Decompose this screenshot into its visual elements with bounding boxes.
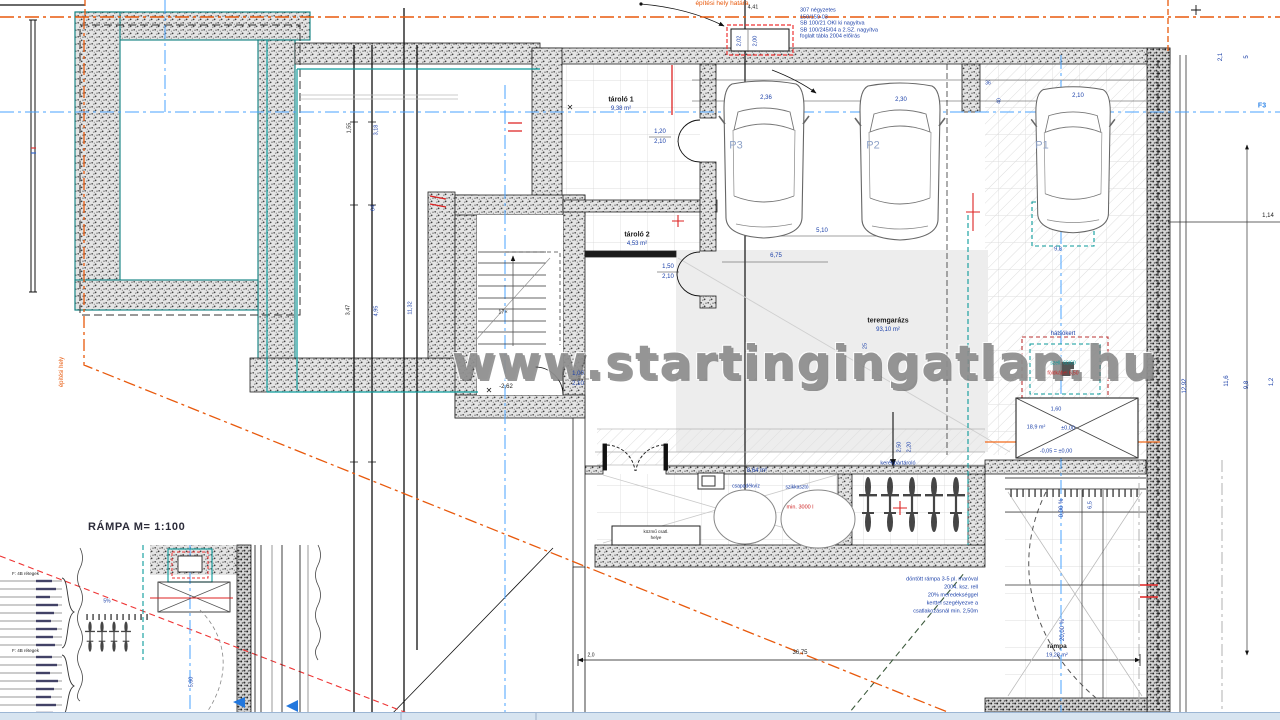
annotation-label: 6,75 bbox=[770, 253, 782, 259]
ramp-grating bbox=[1008, 489, 1140, 497]
car-p2 bbox=[855, 83, 945, 240]
annotation-label: 5,10 bbox=[816, 228, 828, 234]
annotation-label: ✕ bbox=[567, 104, 574, 112]
annotation-label: szikkasztó bbox=[785, 486, 808, 491]
annotation-label: 2,10 bbox=[654, 139, 666, 145]
annotation-label: 2004. ksz. rell bbox=[944, 585, 978, 591]
annotation-label: ✕ bbox=[486, 387, 493, 395]
annotation-label: 2,0 bbox=[588, 654, 595, 659]
annotation-label: 2,20 bbox=[907, 442, 913, 453]
annotation-label: 4,41 bbox=[748, 5, 759, 11]
annotation-label: tároló 1 bbox=[608, 97, 633, 104]
annotation-label: F3 bbox=[1258, 103, 1266, 110]
annotation-label: -2,62 bbox=[499, 384, 513, 390]
annotation-label: 20,00 % bbox=[1060, 619, 1066, 641]
annotation-label: 1,00 bbox=[572, 371, 584, 377]
bar-separator bbox=[535, 713, 537, 720]
annotation-label: 11,32 bbox=[408, 301, 414, 314]
annotation-label: 9,8 bbox=[1054, 247, 1062, 253]
annotation-label: 4,53 m² bbox=[627, 241, 647, 247]
annotation-label: 18,9 m² bbox=[1027, 425, 1046, 431]
annotation-label: szell. 60/60 bbox=[1050, 362, 1075, 367]
annotation-label: 1,50 bbox=[662, 264, 674, 270]
annotation-label: 1,55 bbox=[347, 123, 353, 134]
floor-plan-screenshot: www.startingingatlan.hu RÁMPA M= 1:100 é… bbox=[0, 0, 1280, 720]
ramp-section bbox=[78, 545, 321, 718]
annotation-label: ±0,00 bbox=[1061, 426, 1075, 432]
annotation-label: 2,00 bbox=[753, 36, 759, 47]
annotation-label: 64 bbox=[371, 205, 377, 211]
annotation-label: F: 4B rétegek bbox=[12, 572, 39, 577]
window-bottom-bar bbox=[0, 712, 1280, 720]
annotation-label: csapadékvíz bbox=[732, 485, 760, 490]
annotation-label: közmű csatl. bbox=[643, 530, 668, 535]
annotation-label: 36 bbox=[985, 82, 991, 87]
annotation-label: döntött rámpa 3-5 pl. maróval bbox=[906, 577, 978, 583]
annotation-label: 5,60 bbox=[189, 677, 195, 688]
annotation-label: teremgarázs bbox=[867, 318, 908, 325]
annotation-label: foglalt tábla 2004 előírás bbox=[800, 34, 860, 40]
annotation-label: 2,50 bbox=[897, 442, 903, 453]
annotation-label: 2,10 bbox=[1072, 93, 1084, 99]
annotation-label: 1,60 bbox=[1051, 407, 1062, 413]
annotation-label: 4,95 bbox=[374, 306, 380, 317]
annotation-label: P3 bbox=[729, 141, 742, 152]
annotation-label: P2 bbox=[866, 141, 879, 152]
annotation-label: 8,64 m² bbox=[747, 468, 767, 474]
annotation-label: kerttel szegélyezve a bbox=[927, 601, 978, 607]
annotation-label: P1 bbox=[1035, 141, 1048, 152]
annotation-label: 6,5 bbox=[1088, 501, 1094, 509]
section-title: RÁMPA M= 1:100 bbox=[88, 521, 185, 533]
annotation-label: tároló 2 bbox=[624, 232, 649, 239]
annotation-label: 17× bbox=[498, 310, 507, 316]
annotation-label: 93,10 m² bbox=[876, 327, 900, 333]
annotation-label: 1,2 bbox=[1269, 378, 1275, 386]
annotation-label: F: 4B rétegek bbox=[12, 649, 39, 654]
annotation-label: kerékpártároló bbox=[880, 461, 915, 467]
annotation-label: 40 bbox=[998, 98, 1003, 104]
annotation-label: építési hely bbox=[59, 357, 65, 387]
annotation-label: 2,02 bbox=[737, 36, 743, 47]
annotation-label: 1,20 bbox=[654, 129, 666, 135]
annotation-label: építési hely határa bbox=[695, 1, 748, 8]
annotation-label: 0,00 % bbox=[1059, 499, 1065, 518]
annotation-label: rámpa bbox=[1047, 644, 1067, 651]
annotation-label: 9,8 bbox=[1244, 381, 1250, 389]
car-p1 bbox=[1031, 87, 1115, 233]
annotation-label: 5 bbox=[1244, 55, 1250, 58]
annotation-label: csatlakozásnál min. 2,50m bbox=[913, 609, 978, 615]
car-p3 bbox=[719, 81, 809, 238]
annotation-label: 2,1 bbox=[1218, 53, 1224, 61]
annotation-label: 2,30 bbox=[895, 97, 907, 103]
annotation-label: 11,6 bbox=[1224, 375, 1230, 386]
annotation-label: min. 3000 l bbox=[787, 505, 814, 511]
annotation-label: 19,28 m² bbox=[1046, 653, 1068, 659]
bar-separator bbox=[400, 713, 402, 720]
annotation-label: 20% meredekséggel bbox=[928, 593, 978, 599]
annotation-label: 25 bbox=[863, 343, 869, 349]
annotation-label: 36,75 bbox=[792, 650, 807, 656]
annotation-label: földkábel 6,50 bbox=[1047, 372, 1078, 377]
annotation-label: helye bbox=[651, 536, 662, 541]
annotation-label: 3,47 bbox=[346, 305, 352, 316]
annotation-label: 1,14 bbox=[1262, 213, 1274, 219]
annotation-label: 2,10 bbox=[662, 274, 674, 280]
annotation-label: 3,18 bbox=[374, 125, 380, 136]
annotation-label: hátsókert bbox=[1051, 331, 1076, 337]
annotation-label: 2,36 bbox=[760, 95, 772, 101]
annotation-label: 12,92 bbox=[1182, 378, 1188, 393]
annotation-label: -0,05 = ±0,00 bbox=[1040, 449, 1073, 455]
annotation-label: 9,38 m² bbox=[611, 106, 631, 112]
annotation-label: 5% bbox=[103, 600, 110, 605]
annotation-label: 2,10 bbox=[572, 381, 584, 387]
